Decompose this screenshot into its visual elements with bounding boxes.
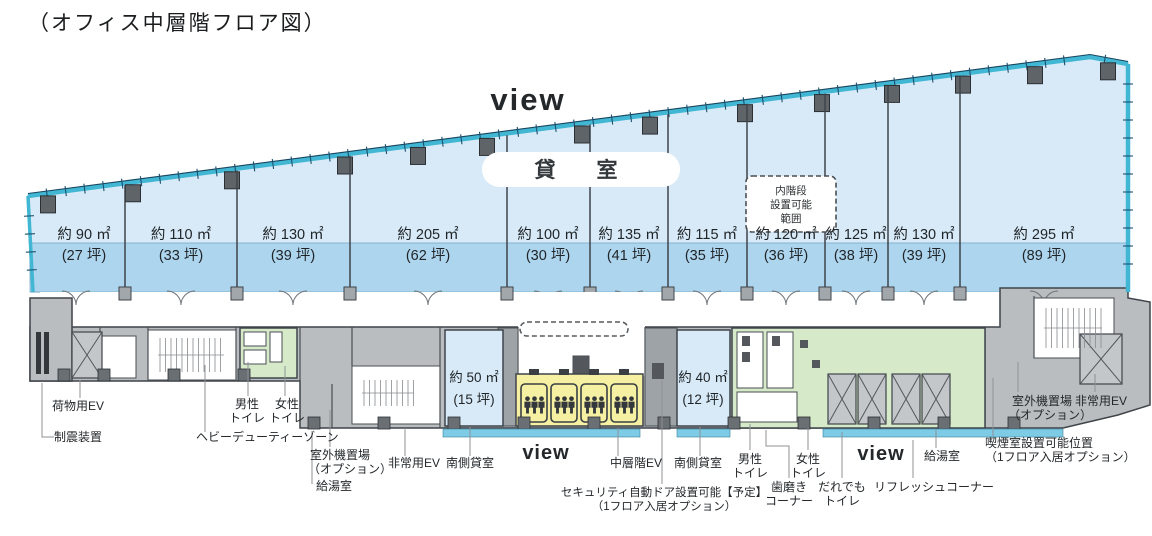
- mens-toilet-right-label: 男性: [738, 452, 762, 466]
- lobby-column: [573, 356, 589, 376]
- outdoor-unit-right-label2: （オプション）: [1008, 408, 1092, 422]
- womens-toilet-left-label2: トイレ: [269, 411, 305, 425]
- security-door-label: セキュリティ自動ドア設置可能【予定】: [561, 485, 767, 499]
- mens-toilet-right-label2: トイレ: [732, 466, 768, 480]
- smoking-room-label: 喫煙室設置可能位置: [985, 435, 1093, 450]
- room-tsubo-label: (33 坪): [159, 247, 203, 264]
- womens-toilet-right-label: 女性: [796, 451, 820, 466]
- view-label-bottom-left: view: [522, 442, 569, 464]
- room-area-label: 約 115 ㎡: [677, 226, 738, 243]
- mid-floor-ev-label: 中層階EV: [610, 455, 662, 470]
- south-room-tsubo: (12 坪): [682, 392, 723, 407]
- room-tsubo-label: (89 坪): [1022, 247, 1066, 264]
- room-area-label: 約 130 ㎡: [262, 226, 324, 243]
- womens-toilet-left-label: 女性: [275, 396, 299, 411]
- floor-plan-page: （オフィス中層階フロア図）: [0, 0, 1152, 536]
- room-tsubo-label: (35 坪): [685, 247, 729, 264]
- inner-stair-line3: 範囲: [781, 212, 802, 225]
- view-label-top: view: [490, 82, 565, 117]
- cargo-ev-label: 荷物用EV: [52, 399, 104, 413]
- room-area-label: 約 110 ㎡: [151, 226, 212, 243]
- south-room-area: 約 40 ㎡: [678, 370, 728, 385]
- room-area-label: 約 130 ㎡: [893, 226, 955, 243]
- room-tsubo-label: (39 坪): [271, 247, 315, 264]
- south-facade-strips: [443, 429, 1063, 437]
- seismic-damper-label: 制震装置: [54, 430, 102, 444]
- south-rental-right-label: 南側貸室: [674, 455, 722, 470]
- mens-toilet-left-label: 男性: [235, 397, 259, 411]
- kitchenette-right-label: 給湯室: [924, 448, 960, 463]
- security-door-label2: （1フロア入居オプション）: [592, 500, 736, 513]
- inner-stair-note: 内階段 設置可能 範囲: [746, 176, 836, 232]
- inner-stair-line1: 内階段: [775, 184, 807, 197]
- heavy-duty-zone-label: ヘビーデューティーゾーン: [196, 429, 339, 444]
- accessible-toilet-label2: トイレ: [824, 494, 860, 508]
- room-tsubo-label: (39 坪): [902, 247, 946, 264]
- room-tsubo-label: (36 坪): [764, 247, 808, 264]
- south-rental-left-label: 南側貸室: [446, 455, 494, 470]
- room-tsubo-label: (38 坪): [834, 247, 878, 264]
- room-area-label: 約 120 ㎡: [755, 226, 817, 243]
- room-tsubo-label: (27 坪): [62, 247, 106, 264]
- lobby-duct: [652, 363, 664, 379]
- room-area-label: 約 135 ㎡: [598, 226, 660, 243]
- emergency-ev-left-label: 非常用EV: [388, 456, 440, 470]
- room-tsubo-label: (30 坪): [526, 247, 570, 264]
- kitchenette-left-label: 給湯室: [316, 478, 352, 493]
- room-area-label: 約 125 ㎡: [825, 226, 887, 243]
- accessible-toilet-label: だれでも: [818, 480, 866, 494]
- tooth-brushing-label2: コーナー: [765, 494, 813, 508]
- south-room-area: 約 50 ㎡: [449, 370, 499, 385]
- room-area-label: 約 90 ㎡: [57, 226, 111, 243]
- room-tsubo-label: (62 坪): [406, 247, 450, 264]
- room-tsubo-label: (41 坪): [607, 247, 651, 264]
- view-label-bottom-right: view: [857, 443, 904, 465]
- south-room-tsubo: (15 坪): [453, 392, 494, 407]
- outdoor-unit-right-label: 室外機置場: [1012, 393, 1072, 408]
- emergency-ev-right-label: 非常用EV: [1075, 394, 1127, 408]
- refresh-corner-label: リフレッシュコーナー: [874, 480, 994, 494]
- floor-plan-diagram: （オフィス中層階フロア図）: [0, 0, 1152, 536]
- mens-toilet-left-label2: トイレ: [229, 411, 265, 425]
- inner-stair-line2: 設置可能: [770, 198, 812, 211]
- womens-toilet-right-label2: トイレ: [790, 466, 826, 480]
- room-area-label: 約 205 ㎡: [397, 226, 459, 243]
- outdoor-unit-left-label: 室外機置場: [310, 447, 370, 462]
- room-area-label: 約 100 ㎡: [517, 226, 579, 243]
- room-area-label: 約 295 ㎡: [1013, 226, 1075, 243]
- rental-room-label: 貸 室: [534, 158, 628, 182]
- smoking-room-label2: （1フロア入居オプション）: [985, 450, 1136, 464]
- tooth-brushing-label: 歯磨き: [771, 480, 807, 494]
- page-title: （オフィス中層階フロア図）: [28, 11, 327, 35]
- outdoor-unit-left-label2: （オプション）: [308, 462, 392, 476]
